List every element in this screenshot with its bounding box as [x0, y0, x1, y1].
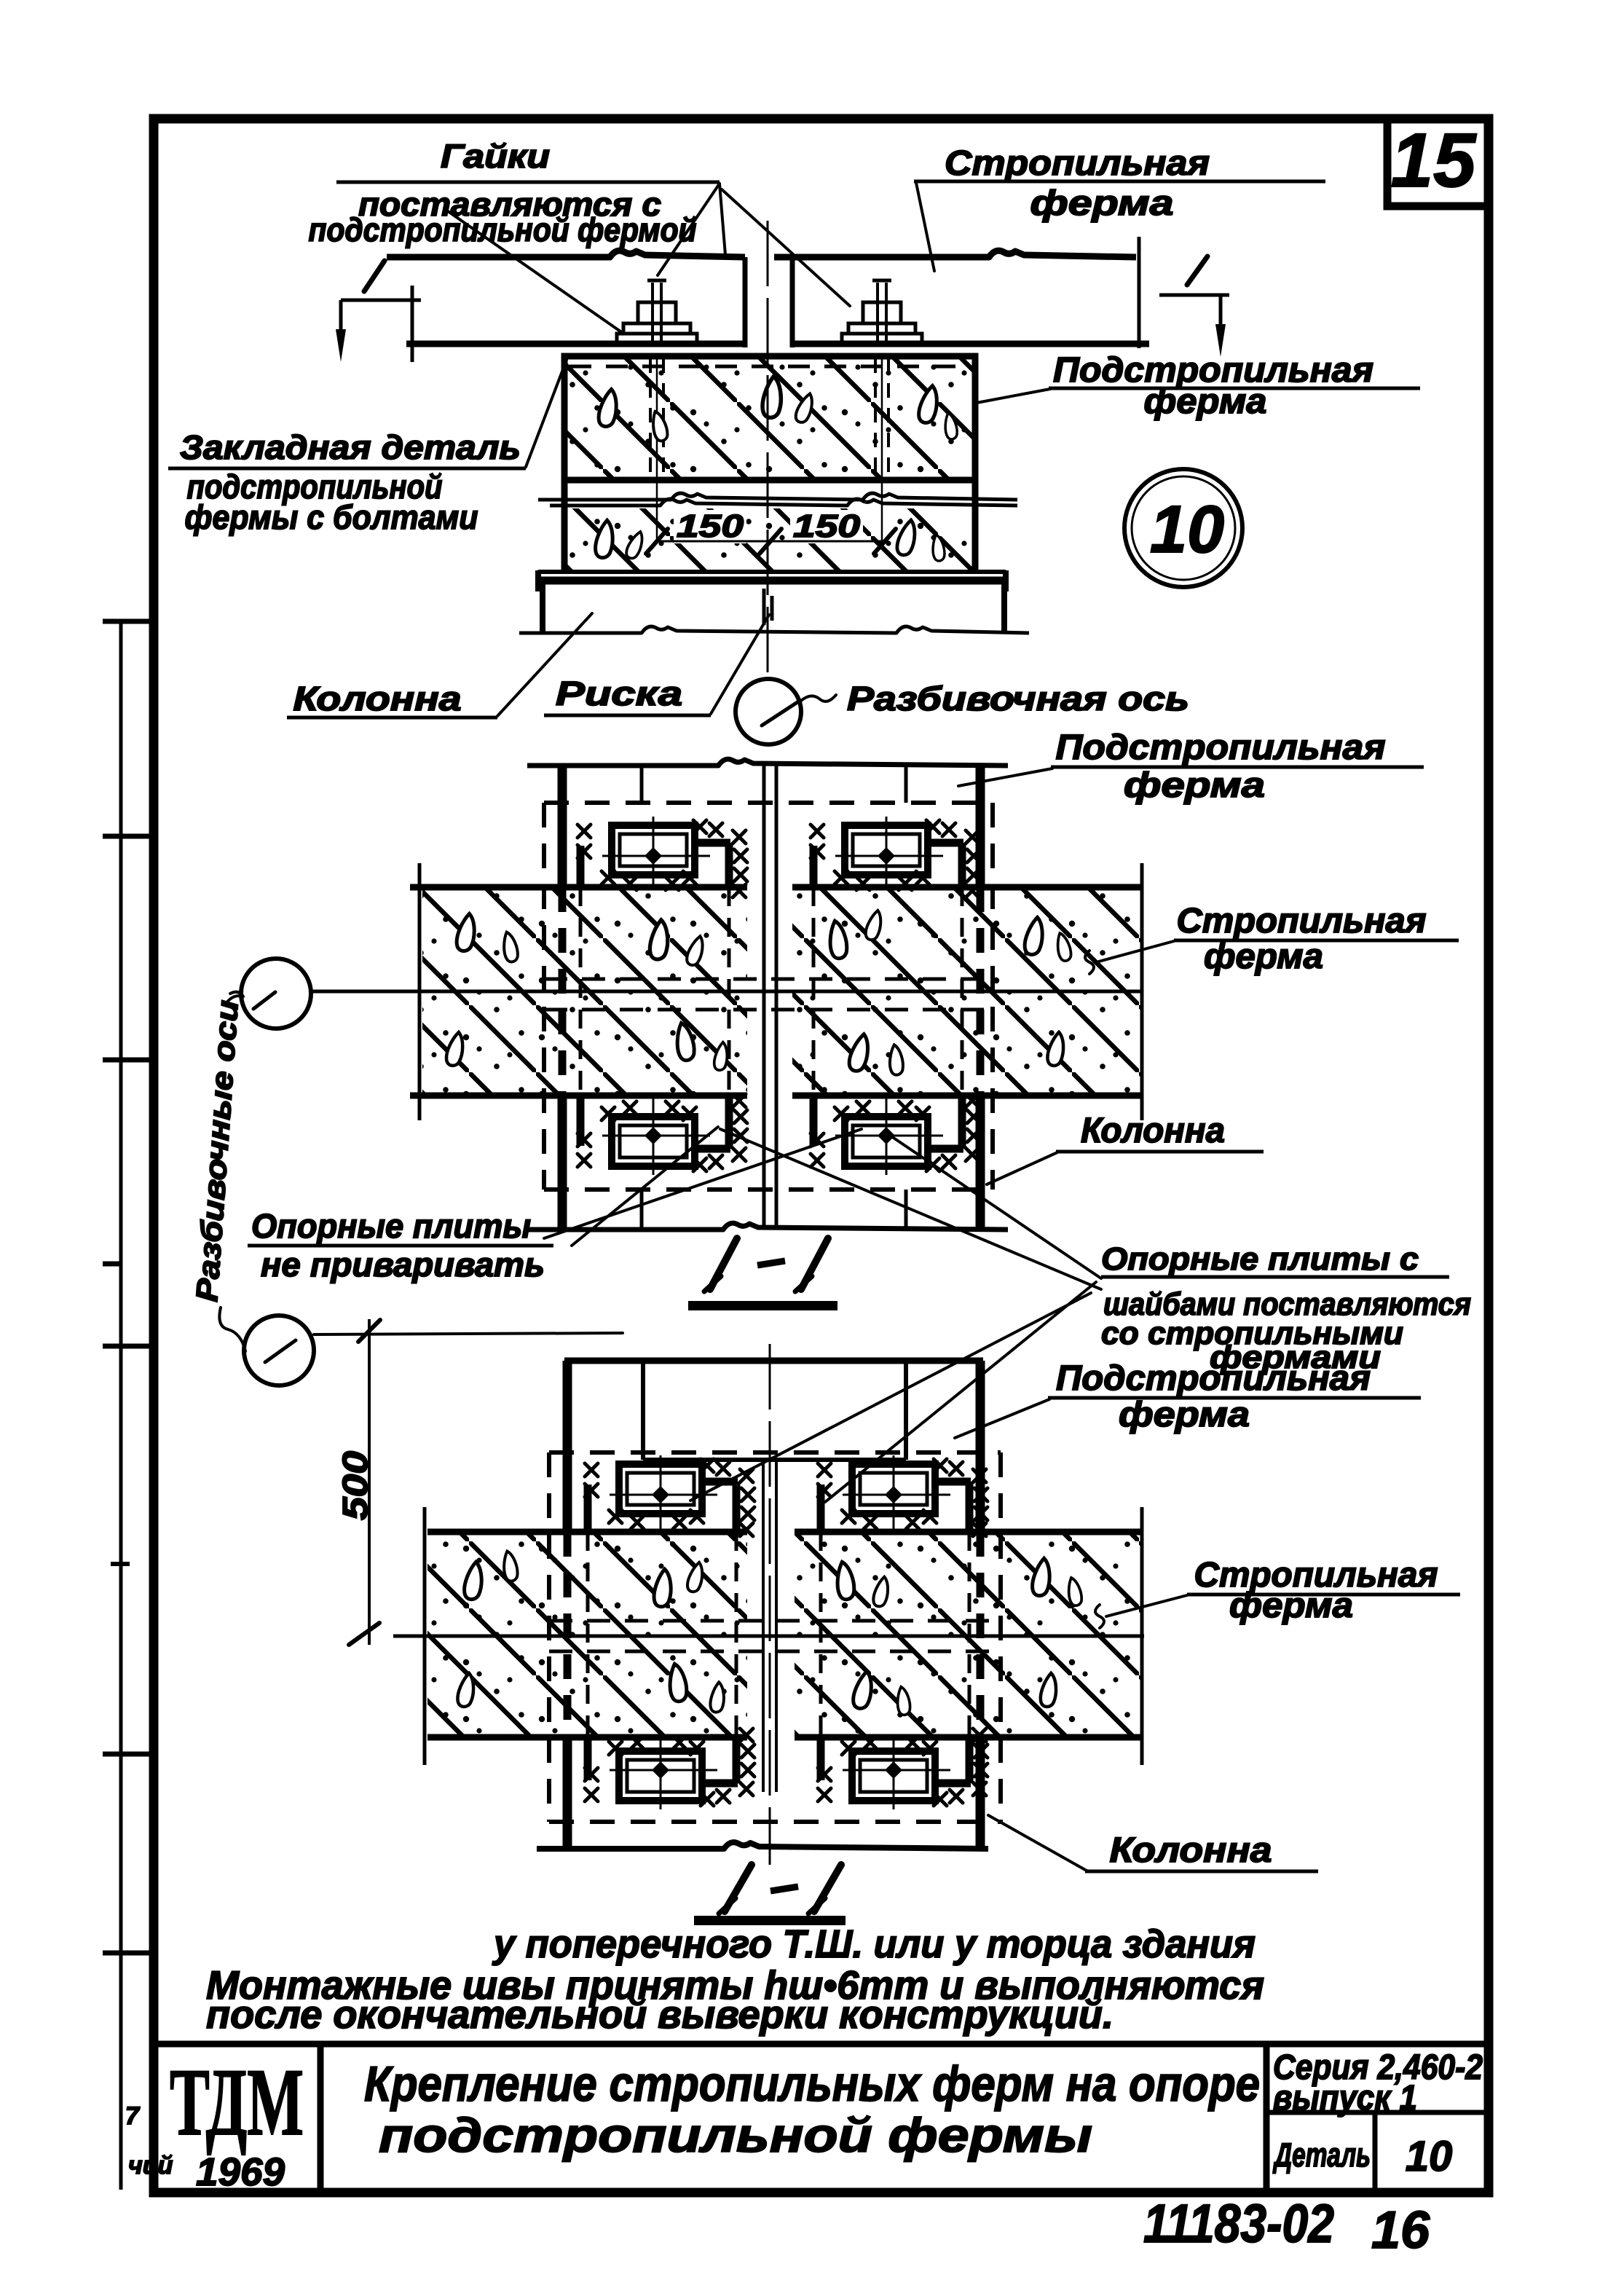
- svg-text:Опорные плиты: Опорные плиты: [251, 1207, 531, 1245]
- svg-text:150: 150: [793, 508, 861, 544]
- svg-text:Колонна: Колонна: [293, 680, 462, 717]
- svg-text:Колонна: Колонна: [1081, 1112, 1225, 1150]
- svg-text:Закладная деталь: Закладная деталь: [180, 428, 521, 466]
- svg-text:15: 15: [1391, 118, 1477, 203]
- svg-text:10: 10: [1406, 2133, 1453, 2180]
- svg-text:ферма: ферма: [1119, 1396, 1250, 1434]
- svg-text:Стропильная: Стропильная: [1177, 902, 1427, 940]
- svg-text:Деталь: Деталь: [1272, 2136, 1371, 2174]
- svg-text:Опорные плиты с: Опорные плиты с: [1101, 1241, 1419, 1277]
- svg-text:ферма: ферма: [1124, 766, 1265, 805]
- svg-text:10: 10: [1150, 492, 1224, 567]
- svg-text:ферма: ферма: [1030, 184, 1174, 223]
- svg-text:выпуск 1: выпуск 1: [1273, 2079, 1417, 2118]
- svg-text:ферма: ферма: [1229, 1587, 1353, 1625]
- svg-text:16: 16: [1371, 2201, 1430, 2260]
- svg-text:после окончательной выверки: после окончательной выверки конструкций.: [206, 1993, 1114, 2037]
- svg-text:Стропильная: Стропильная: [945, 144, 1210, 183]
- svg-text:ТДМ: ТДМ: [170, 2048, 304, 2155]
- svg-text:ферма: ферма: [1204, 937, 1323, 976]
- svg-text:ферма: ферма: [1144, 382, 1267, 421]
- svg-text:Подстропильная: Подстропильная: [1056, 728, 1386, 767]
- svg-text:чий: чий: [128, 2152, 173, 2179]
- svg-text:150: 150: [677, 508, 744, 544]
- svg-text:Риска: Риска: [556, 675, 682, 712]
- svg-text:подстропильной фермой: подстропильной фермой: [309, 211, 697, 248]
- svg-text:подстропильной фермы: подстропильной фермы: [379, 2108, 1092, 2162]
- svg-text:1969: 1969: [196, 2150, 285, 2194]
- svg-text:Разбивочная ось: Разбивочная ось: [847, 680, 1189, 717]
- svg-text:7: 7: [125, 2102, 141, 2130]
- svg-text:фермы с болтами: фермы с болтами: [185, 498, 478, 536]
- svg-text:у поперечного Т.Ш. или у: у поперечного Т.Ш. или у торца здания: [492, 1922, 1256, 1966]
- svg-text:11183-02: 11183-02: [1143, 2193, 1334, 2254]
- svg-text:Гайки: Гайки: [441, 138, 550, 175]
- svg-text:Подстропильная: Подстропильная: [1056, 1359, 1371, 1398]
- svg-text:500: 500: [336, 1451, 375, 1520]
- svg-text:Колонна: Колонна: [1110, 1831, 1272, 1870]
- svg-text:не приваривать: не приваривать: [261, 1246, 545, 1283]
- svg-text:Крепление стропильных ферм: Крепление стропильных ферм на опоре: [364, 2056, 1260, 2112]
